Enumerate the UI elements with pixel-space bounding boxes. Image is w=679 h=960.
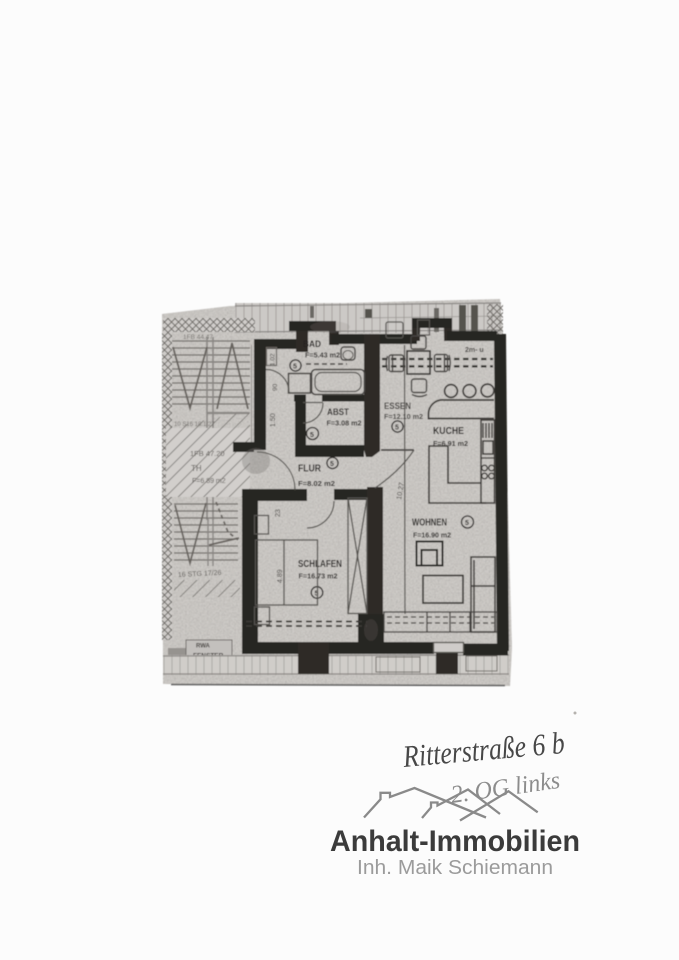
svg-text:ABST: ABST bbox=[327, 407, 349, 418]
svg-text:F=3.08 m2: F=3.08 m2 bbox=[327, 419, 362, 428]
svg-text:5: 5 bbox=[330, 461, 334, 468]
svg-text:5: 5 bbox=[310, 432, 314, 439]
svg-text:TH: TH bbox=[191, 464, 202, 473]
svg-text:1FB 47.20: 1FB 47.20 bbox=[190, 449, 225, 458]
svg-text:5: 5 bbox=[465, 520, 469, 527]
svg-text:Inh. Maik Schiemann: Inh. Maik Schiemann bbox=[357, 857, 553, 879]
svg-text:FLUR: FLUR bbox=[298, 464, 322, 475]
svg-text:F=12.10 m2: F=12.10 m2 bbox=[384, 414, 423, 421]
svg-text:F=5.43 m2: F=5.43 m2 bbox=[305, 351, 340, 360]
svg-text:F=6.89 m2: F=6.89 m2 bbox=[192, 478, 226, 485]
svg-text:5: 5 bbox=[293, 364, 297, 371]
svg-text:F=16.90 m2: F=16.90 m2 bbox=[413, 531, 451, 540]
svg-text:F=8.02 m2: F=8.02 m2 bbox=[298, 479, 335, 488]
svg-text:1.02: 1.02 bbox=[270, 353, 277, 366]
svg-text:SCHLAFEN: SCHLAFEN bbox=[298, 559, 342, 570]
svg-text:Ritterstraße 6 b: Ritterstraße 6 b bbox=[401, 725, 566, 774]
svg-text:2m- u: 2m- u bbox=[465, 347, 484, 354]
svg-text:23: 23 bbox=[275, 509, 282, 517]
svg-text:90: 90 bbox=[272, 383, 279, 391]
svg-text:1.50: 1.50 bbox=[270, 413, 277, 427]
svg-text:2. OG links: 2. OG links bbox=[449, 767, 562, 809]
svg-text:BAD: BAD bbox=[303, 339, 321, 349]
svg-text:WOHNEN: WOHNEN bbox=[412, 518, 447, 529]
svg-text:ESSEN: ESSEN bbox=[384, 401, 411, 411]
svg-text:1FB 44.47: 1FB 44.47 bbox=[183, 334, 213, 341]
svg-text:4.89: 4.89 bbox=[277, 569, 284, 583]
svg-text:Anhalt-Immobilien: Anhalt-Immobilien bbox=[330, 825, 580, 858]
svg-text:5: 5 bbox=[395, 425, 399, 432]
svg-text:RWA: RWA bbox=[196, 644, 211, 650]
svg-text:KUCHE: KUCHE bbox=[433, 426, 464, 437]
